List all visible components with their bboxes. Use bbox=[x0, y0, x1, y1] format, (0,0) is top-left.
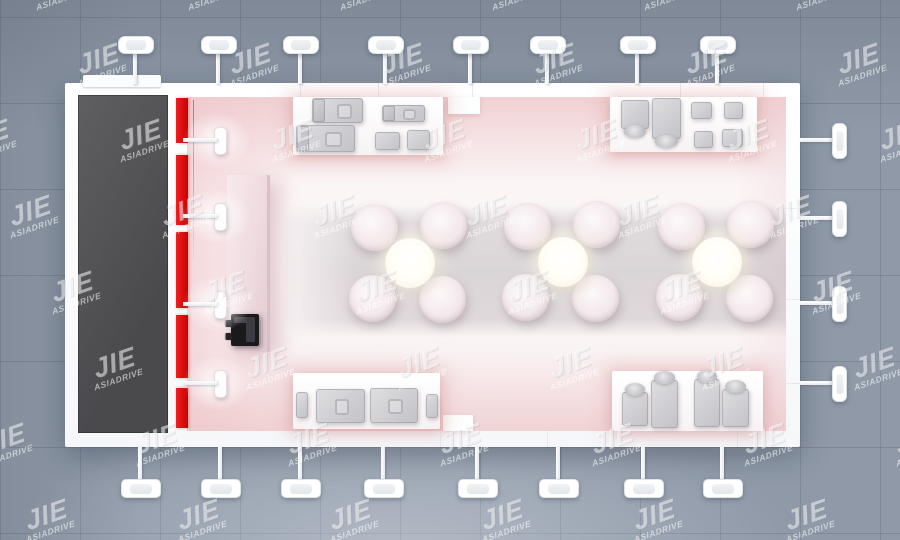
spotlight-arm bbox=[800, 381, 834, 385]
spotlight-top bbox=[368, 36, 404, 54]
spotlight-bottom bbox=[121, 479, 161, 498]
machine-cylinder-top bbox=[654, 371, 675, 384]
blender-machine bbox=[651, 380, 678, 428]
machine-side-cap bbox=[383, 106, 395, 121]
spotlight-arm bbox=[800, 301, 834, 305]
spotlight-lens bbox=[628, 40, 648, 50]
blender-machine bbox=[722, 389, 749, 427]
appliance-horizontal bbox=[382, 105, 425, 122]
appliance-horizontal bbox=[296, 125, 355, 152]
wall-seam bbox=[786, 383, 800, 384]
counter-end-unit bbox=[296, 392, 308, 418]
spotlight-lens bbox=[708, 40, 728, 50]
dining-seat bbox=[573, 201, 620, 248]
spotlight-lens bbox=[126, 40, 146, 50]
spotlight-arm bbox=[800, 216, 834, 220]
spotlight-bottom bbox=[539, 479, 579, 498]
spotlight-right bbox=[832, 366, 847, 402]
dining-table-center bbox=[538, 237, 588, 287]
appliance-small bbox=[722, 129, 743, 147]
machine-cylinder-top bbox=[655, 135, 678, 148]
spotlight-bottom bbox=[201, 479, 241, 498]
coffee-machine bbox=[652, 98, 681, 139]
dark-display-platform bbox=[78, 95, 168, 433]
dining-seat bbox=[727, 201, 774, 248]
booth-render-canvas: JIEASIADRIVEJIEASIADRIVEJIEASIADRIVEJIEA… bbox=[0, 0, 900, 540]
top-left-wall-ledge bbox=[83, 75, 161, 87]
counter-end-unit bbox=[426, 394, 438, 418]
wall-seam bbox=[547, 431, 548, 447]
wall-seam bbox=[472, 83, 473, 97]
wall-light-arm bbox=[183, 138, 217, 142]
blender-machine bbox=[622, 392, 648, 426]
top-wall-column bbox=[448, 97, 480, 114]
dining-seat bbox=[658, 203, 705, 250]
machine-cylinder-top bbox=[725, 380, 746, 393]
wall-light-arm bbox=[183, 302, 217, 306]
wall-light-arm bbox=[183, 381, 217, 385]
spotlight-lens bbox=[633, 484, 655, 494]
blender-machine bbox=[694, 379, 720, 427]
spotlight-lens bbox=[209, 40, 229, 50]
spotlight-lens bbox=[291, 40, 311, 50]
wall-seam bbox=[786, 299, 800, 300]
wall-seam bbox=[440, 431, 441, 447]
appliance-small bbox=[694, 131, 713, 148]
spotlight-arm bbox=[800, 138, 834, 142]
appliance-small bbox=[407, 130, 430, 150]
spotlight-bottom bbox=[458, 479, 498, 498]
appliance-horizontal bbox=[312, 98, 363, 123]
spotlight-lens bbox=[130, 484, 152, 494]
spotlight-top bbox=[453, 36, 489, 54]
spotlight-right bbox=[832, 286, 847, 322]
spotlight-lens bbox=[836, 294, 843, 314]
machine-detail bbox=[403, 109, 416, 120]
spotlight-top bbox=[530, 36, 566, 54]
spotlight-lens bbox=[712, 484, 734, 494]
spotlight-lens bbox=[836, 374, 843, 394]
spotlight-right bbox=[832, 123, 847, 159]
spotlight-right bbox=[832, 201, 847, 237]
spotlight-top bbox=[118, 36, 154, 54]
spotlight-top bbox=[201, 36, 237, 54]
chest-cooler bbox=[316, 389, 365, 423]
booth-structure bbox=[65, 83, 800, 447]
spotlight-lens bbox=[548, 484, 570, 494]
machine-detail bbox=[325, 132, 342, 147]
spotlight-top bbox=[620, 36, 656, 54]
dining-seat bbox=[504, 203, 551, 250]
machine-side-cap bbox=[313, 99, 325, 122]
dining-seat bbox=[502, 274, 549, 321]
spotlight-top bbox=[700, 36, 736, 54]
dining-table-center bbox=[385, 238, 435, 288]
cooler-handle bbox=[388, 399, 403, 415]
dining-seat bbox=[420, 202, 467, 249]
spotlight-lens bbox=[467, 484, 489, 494]
chest-cooler bbox=[370, 388, 418, 423]
wall-seam bbox=[680, 83, 681, 97]
machine-slot bbox=[246, 317, 255, 342]
wall-seam bbox=[300, 83, 301, 97]
spotlight-lens bbox=[836, 131, 843, 151]
spotlight-lens bbox=[376, 40, 396, 50]
appliance-small bbox=[724, 102, 743, 119]
appliance-small bbox=[375, 132, 400, 150]
wall-seam bbox=[378, 83, 379, 97]
machine-detail bbox=[337, 104, 352, 119]
dining-seat bbox=[349, 275, 396, 322]
cooler-handle bbox=[335, 399, 350, 415]
machine-side-cap bbox=[297, 126, 309, 151]
appliance-small bbox=[691, 102, 712, 119]
spotlight-lens bbox=[538, 40, 558, 50]
spotlight-top bbox=[283, 36, 319, 54]
machine-knob bbox=[226, 333, 232, 340]
dining-seat bbox=[351, 204, 398, 251]
spotlight-bottom bbox=[281, 479, 321, 498]
machine-cylinder-top bbox=[625, 383, 645, 396]
spotlight-bottom bbox=[703, 479, 743, 498]
spotlight-lens bbox=[210, 484, 232, 494]
wall-seam bbox=[737, 431, 738, 447]
spotlight-lens bbox=[836, 209, 843, 229]
wall-light-arm bbox=[183, 214, 217, 218]
wall-seam bbox=[763, 83, 764, 97]
machine-cylinder-top bbox=[697, 370, 717, 383]
spotlight-bottom bbox=[624, 479, 664, 498]
spotlight-bottom bbox=[364, 479, 404, 498]
spotlight-lens bbox=[461, 40, 481, 50]
spotlight-lens bbox=[373, 484, 395, 494]
wall-seam bbox=[786, 208, 800, 209]
dining-table-center bbox=[692, 237, 742, 287]
spotlight-lens bbox=[290, 484, 312, 494]
bottom-wall-column bbox=[443, 415, 473, 431]
dining-seat bbox=[656, 274, 703, 321]
machine-cylinder-top bbox=[624, 125, 646, 138]
